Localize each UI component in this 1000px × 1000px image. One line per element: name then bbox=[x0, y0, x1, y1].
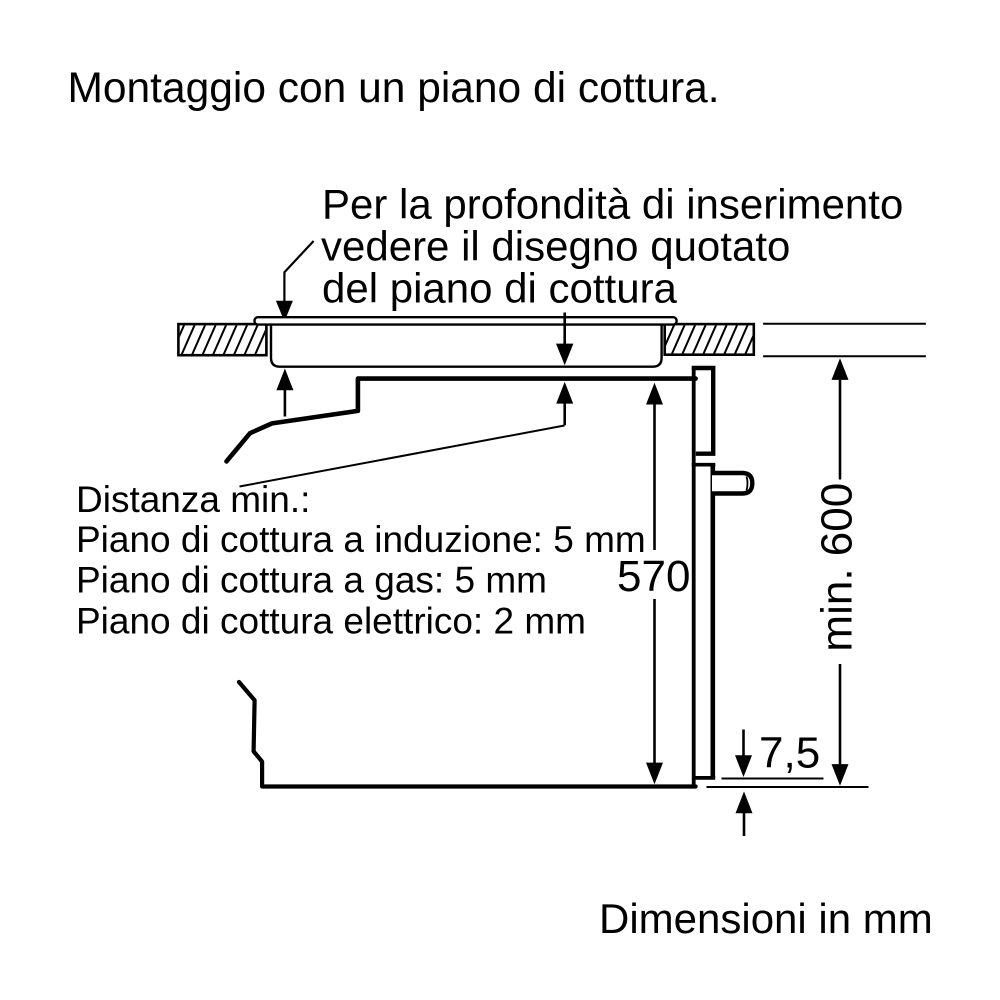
svg-text:min. 600: min. 600 bbox=[813, 483, 862, 652]
svg-text:570: 570 bbox=[617, 552, 690, 601]
svg-text:vedere il disegno quotato: vedere il disegno quotato bbox=[321, 223, 790, 270]
svg-text:del piano di cottura: del piano di cottura bbox=[322, 265, 678, 312]
svg-text:Piano di cottura a induzione:: Piano di cottura a induzione: 5 mm bbox=[76, 519, 646, 560]
svg-text:Piano di cottura elettrico: 2: Piano di cottura elettrico: 2 mm bbox=[76, 601, 586, 642]
svg-text:Distanza min.:: Distanza min.: bbox=[76, 479, 310, 520]
svg-text:7,5: 7,5 bbox=[759, 729, 820, 778]
svg-text:Piano di cottura a gas: 5 mm: Piano di cottura a gas: 5 mm bbox=[76, 560, 547, 601]
svg-text:Montaggio con un piano di cott: Montaggio con un piano di cottura. bbox=[68, 65, 720, 112]
svg-text:Per la profondità di inserimen: Per la profondità di inserimento bbox=[322, 181, 903, 228]
svg-text:Dimensioni in mm: Dimensioni in mm bbox=[599, 895, 933, 942]
